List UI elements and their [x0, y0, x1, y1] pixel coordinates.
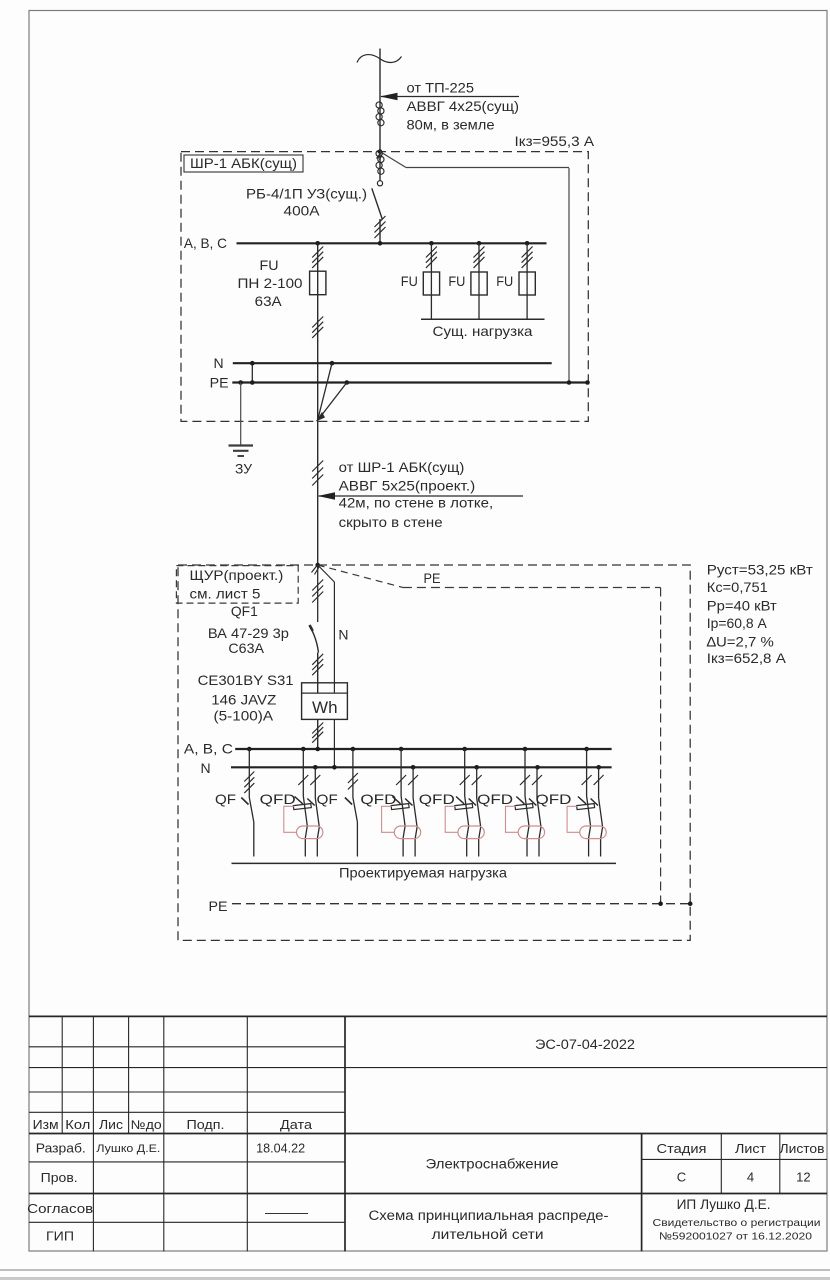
svg-text:лительной сети: лительной сети [432, 1227, 544, 1242]
svg-text:ЭС-07-04-2022: ЭС-07-04-2022 [535, 1037, 635, 1052]
svg-text:А, В, С: А, В, С [184, 235, 227, 251]
svg-text:Проектируемая нагрузка: Проектируемая нагрузка [339, 865, 507, 881]
svg-text:Подп.: Подп. [187, 1118, 225, 1132]
svg-text:QF: QF [215, 791, 236, 807]
svg-text:Руст=53,25 кВт: Руст=53,25 кВт [707, 562, 814, 578]
svg-text:PE: PE [210, 375, 229, 391]
svg-text:скрыто в стене: скрыто в стене [339, 514, 443, 530]
svg-text:42м, по стене в лотке,: 42м, по стене в лотке, [339, 495, 494, 511]
svg-text:QFD: QFD [419, 791, 455, 807]
svg-text:Лушко Д.Е.: Лушко Д.Е. [96, 1143, 160, 1155]
svg-text:Дата: Дата [280, 1118, 312, 1132]
svg-text:ЩУР(проект.): ЩУР(проект.) [190, 567, 284, 583]
svg-text:∆U=2,7 %: ∆U=2,7 % [707, 634, 774, 650]
svg-text:ИП Лушко Д.Е.: ИП Лушко Д.Е. [677, 1197, 771, 1212]
svg-text:Iр=60,8 А: Iр=60,8 А [707, 615, 768, 631]
svg-text:400А: 400А [284, 203, 321, 219]
svg-text:FU: FU [496, 273, 513, 289]
svg-text:Сущ. нагрузка: Сущ. нагрузка [433, 323, 533, 339]
svg-text:QFD: QFD [477, 791, 513, 807]
svg-text:№592001027 от 16.12.2020: №592001027 от 16.12.2020 [659, 1231, 812, 1243]
svg-text:QF1: QF1 [231, 603, 258, 619]
svg-text:Разраб.: Разраб. [36, 1142, 86, 1156]
svg-text:Iкз=955,3 А: Iкз=955,3 А [515, 133, 595, 149]
svg-text:PE: PE [209, 898, 228, 914]
svg-text:Стадия: Стадия [657, 1141, 707, 1156]
svg-text:Свидетельство о регистрации: Свидетельство о регистрации [653, 1217, 821, 1229]
svg-text:АВВГ 5х25(проект.): АВВГ 5х25(проект.) [339, 478, 476, 494]
svg-text:ГИП: ГИП [46, 1230, 74, 1244]
svg-text:12: 12 [796, 1170, 810, 1185]
svg-text:146 JAVZ: 146 JAVZ [211, 692, 276, 708]
svg-text:QFD: QFD [536, 791, 572, 807]
svg-text:FU: FU [401, 273, 418, 289]
svg-text:QF: QF [317, 791, 338, 807]
svg-text:N: N [213, 355, 223, 371]
svg-text:Согласов: Согласов [27, 1202, 93, 1216]
svg-text:QFD: QFD [360, 791, 396, 807]
svg-text:РБ-4/1П УЗ(сущ.): РБ-4/1П УЗ(сущ.) [246, 186, 367, 202]
svg-text:№до: №до [131, 1118, 162, 1132]
svg-text:ПН 2-100: ПН 2-100 [238, 275, 303, 291]
svg-text:Схема принципиальная распреде-: Схема принципиальная распреде- [369, 1208, 609, 1223]
svg-text:ШР-1 АБК(сущ): ШР-1 АБК(сущ) [190, 156, 297, 171]
svg-text:С: С [677, 1170, 686, 1185]
svg-text:18.04.22: 18.04.22 [256, 1142, 305, 1156]
svg-text:63А: 63А [255, 293, 283, 309]
svg-text:от ШР-1 АБК(сущ): от ШР-1 АБК(сущ) [339, 459, 465, 475]
svg-text:Лис: Лис [99, 1118, 123, 1132]
svg-text:Пров.: Пров. [41, 1171, 78, 1185]
svg-text:Электроснабжение: Электроснабжение [426, 1157, 559, 1172]
svg-text:Лист: Лист [735, 1141, 766, 1156]
svg-text:4: 4 [747, 1170, 754, 1185]
svg-text:CE301BY S31: CE301BY S31 [198, 672, 294, 688]
svg-text:ВА 47-29 3р: ВА 47-29 3р [208, 625, 289, 641]
svg-text:FU: FU [448, 273, 465, 289]
svg-text:PE: PE [424, 570, 441, 586]
svg-text:Iкз=652,8 А: Iкз=652,8 А [707, 650, 787, 666]
svg-text:Кол: Кол [65, 1118, 90, 1132]
svg-text:Wh: Wh [312, 698, 338, 717]
svg-text:А, В, С: А, В, С [184, 741, 233, 757]
svg-text:АВВГ 4х25(сущ): АВВГ 4х25(сущ) [407, 98, 520, 114]
svg-text:FU: FU [260, 257, 279, 273]
svg-text:Изм: Изм [33, 1118, 59, 1132]
svg-text:см. лист 5: см. лист 5 [190, 586, 261, 602]
svg-text:Кс=0,751: Кс=0,751 [707, 579, 768, 595]
svg-text:N: N [338, 627, 348, 643]
svg-text:С63А: С63А [228, 640, 264, 656]
svg-text:N: N [200, 760, 210, 776]
svg-text:Листов: Листов [780, 1141, 825, 1156]
svg-text:от ТП-225: от ТП-225 [407, 80, 475, 96]
svg-text:80м, в земле: 80м, в земле [407, 117, 495, 133]
svg-text:(5-100)А: (5-100)А [214, 708, 274, 724]
svg-text:QFD: QFD [260, 791, 296, 807]
svg-text:Рр=40 кВт: Рр=40 кВт [707, 598, 778, 614]
svg-text:ЗУ: ЗУ [235, 461, 252, 477]
